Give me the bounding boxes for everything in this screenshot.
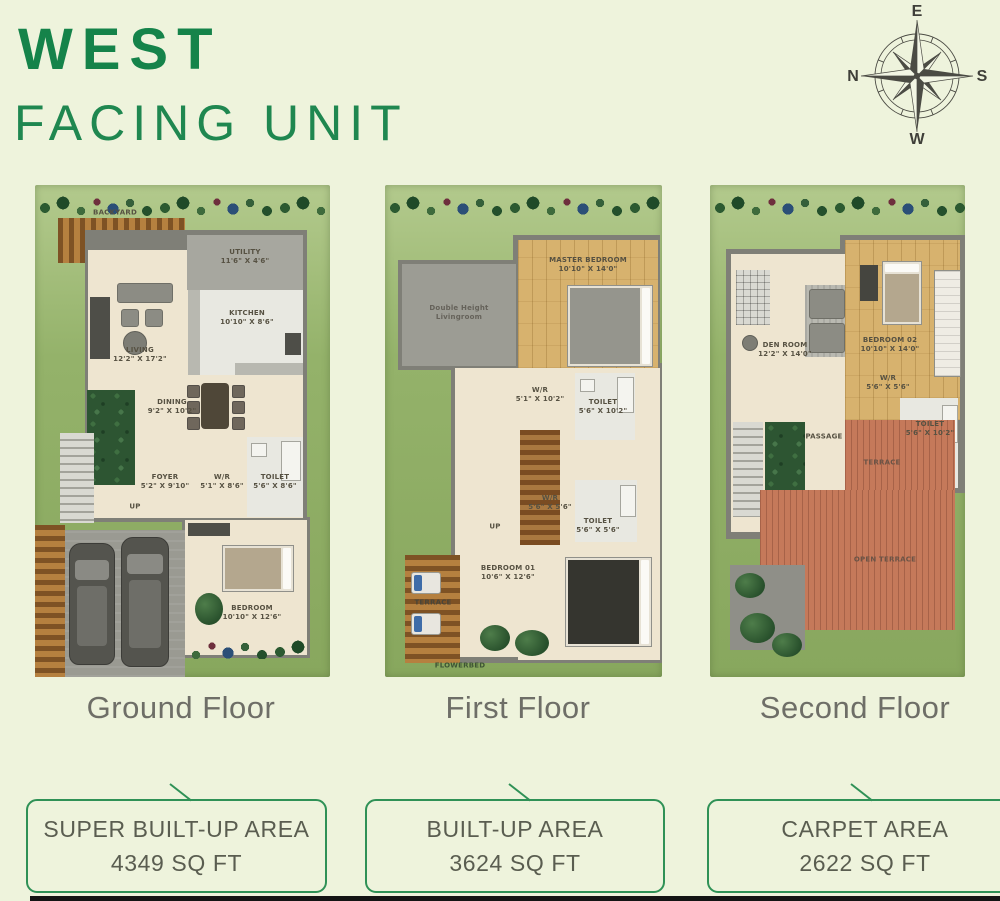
compass-west-label: W	[909, 131, 925, 147]
room-label-double-height: Double Height Livingroom	[413, 304, 505, 322]
room-label-wr: W/R5'6" X 5'6"	[866, 374, 910, 392]
caption-ground-floor: Ground Floor	[87, 690, 276, 726]
area-label: BUILT-UP AREA	[427, 816, 604, 843]
plant-icon	[740, 613, 775, 643]
room-label-utility: UTILITY11'6" X 4'6"	[221, 248, 270, 266]
area-value: 4349 SQ FT	[111, 850, 242, 877]
flowerbed-label: FLOWERBED	[435, 661, 486, 670]
ground-floor-plan: BACKYARD UTILI	[35, 185, 330, 677]
room-label-wr2: W/R5'6" X 5'6"	[528, 494, 572, 512]
room-label-wr: W/R5'1" X 8'6"	[200, 473, 244, 491]
carpet-area-box: CARPET AREA 2622 SQ FT	[707, 799, 1000, 893]
built-up-area-box: BUILT-UP AREA 3624 SQ FT	[365, 799, 665, 893]
sofa-icon	[117, 283, 173, 303]
backyard-label: BACKYARD	[93, 208, 137, 217]
plant-icon	[515, 630, 549, 656]
area-value: 3624 SQ FT	[449, 850, 580, 877]
plant-icon	[480, 625, 510, 651]
shrub-border	[385, 193, 662, 223]
open-terrace-label: OPEN TERRACE	[854, 555, 916, 564]
wc-icon	[251, 443, 267, 457]
sofa-icon	[809, 323, 845, 353]
bed-icon	[222, 545, 294, 592]
passage-label: PASSAGE	[805, 432, 842, 441]
room-label-kitchen: KITCHEN10'10" X 8'6"	[220, 309, 274, 327]
bed-icon	[565, 557, 652, 647]
first-floor-plan: Double Height Livingroom MASTER BEDROOM1…	[385, 185, 662, 677]
room-label-master-bedroom: MASTER BEDROOM10'10" X 14'0"	[549, 256, 627, 274]
plant-icon	[772, 633, 802, 657]
room-label-bedroom01: BEDROOM 0110'6" X 12'6"	[481, 564, 535, 582]
super-built-up-area-box: SUPER BUILT-UP AREA 4349 SQ FT	[26, 799, 327, 893]
page: WEST FACING UNIT E S W N	[0, 0, 1000, 901]
bottom-bar	[30, 896, 1000, 901]
car-icon	[69, 543, 115, 665]
terrace-label: TERRACE	[863, 458, 900, 467]
plant-icon	[735, 573, 765, 598]
lounger-icon	[411, 613, 441, 635]
room-label-wr1: W/R5'1" X 10'2"	[516, 386, 565, 404]
hall-floor	[455, 368, 520, 560]
room-label-bedroom: BEDROOM10'10" X 12'6"	[223, 604, 282, 622]
wardrobe-icon	[934, 270, 961, 377]
wc-icon	[580, 379, 595, 392]
staircase	[520, 430, 560, 545]
chair-icon	[187, 385, 200, 398]
page-title-line1: WEST	[18, 16, 222, 83]
pergola-side	[35, 525, 65, 677]
lounger-icon	[411, 572, 441, 594]
kitchen-counter	[235, 363, 303, 375]
room-label-dining: DINING9'2" X 10'2"	[148, 398, 197, 416]
room-label-living: LIVING12'2" X 17'2"	[113, 346, 167, 364]
room-label-bedroom02: BEDROOM 0210'10" X 14'0"	[861, 336, 920, 354]
room-label-den: DEN ROOM12'2" X 14'0"	[758, 341, 812, 359]
room-label-foyer: FOYER5'2" X 9'10"	[141, 473, 190, 491]
tv-cabinet-icon	[90, 297, 110, 359]
compass-rose-icon: E S W N	[845, 2, 990, 147]
wardrobe-icon	[188, 523, 230, 536]
compass-north-label: N	[847, 68, 859, 85]
bed-icon	[567, 285, 653, 367]
room-label-terrace: TERRACE	[414, 598, 451, 607]
area-label: SUPER BUILT-UP AREA	[43, 816, 309, 843]
fridge-icon	[285, 333, 301, 355]
armchair-icon	[145, 309, 163, 327]
compass-east-label: E	[912, 3, 923, 20]
car-icon	[121, 537, 169, 667]
staircase	[733, 422, 763, 517]
kitchen-counter	[188, 290, 200, 375]
area-value: 2622 SQ FT	[799, 850, 930, 877]
chair-icon	[232, 401, 245, 414]
rug	[860, 265, 878, 301]
planter-hedge	[87, 390, 135, 485]
area-label: CARPET AREA	[781, 816, 948, 843]
second-floor-plan: DEN ROOM12'2" X 14'0" BEDROOM 0210'10" X…	[710, 185, 965, 677]
chair-icon	[232, 417, 245, 430]
caption-first-floor: First Floor	[446, 690, 591, 726]
chair-icon	[232, 385, 245, 398]
shrub-border	[710, 193, 965, 223]
room-label-toilet1: TOILET5'6" X 10'2"	[579, 398, 628, 416]
up-label: UP	[489, 522, 500, 531]
room-label-toilet: TOILET5'6" X 8'6"	[253, 473, 297, 491]
page-title-line2: FACING UNIT	[14, 94, 408, 152]
caption-second-floor: Second Floor	[760, 690, 950, 726]
armchair-icon	[121, 309, 139, 327]
skylight-grid	[736, 270, 770, 325]
compass-south-label: S	[977, 68, 988, 85]
shower-icon	[620, 485, 636, 517]
bed-icon	[882, 261, 922, 325]
room-label-toilet: TOILET5'6" X 10'2"	[906, 420, 955, 438]
chair-icon	[187, 417, 200, 430]
up-label: UP	[129, 502, 140, 511]
sofa-icon	[809, 289, 845, 319]
dining-table-icon	[201, 383, 229, 429]
room-label-toilet2: TOILET5'6" X 5'6"	[576, 517, 620, 535]
staircase	[60, 433, 94, 523]
fan-icon	[742, 335, 758, 351]
plant-icon	[195, 593, 223, 625]
